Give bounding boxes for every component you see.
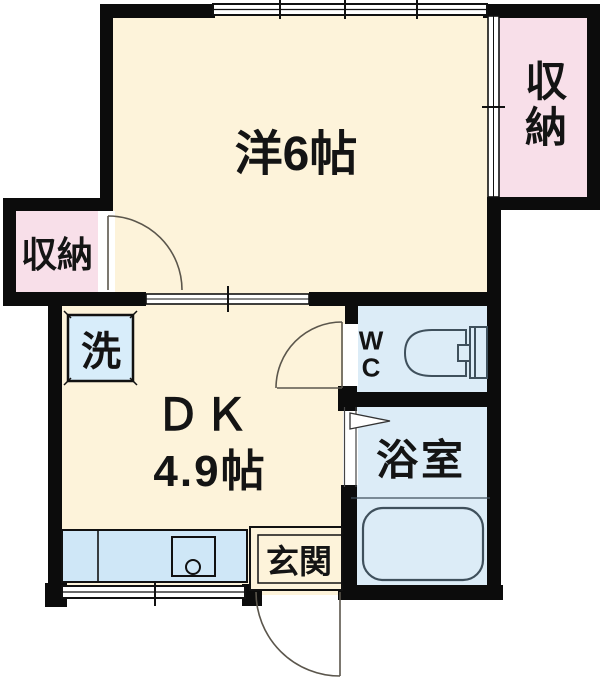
label-wc-line2: C xyxy=(359,355,384,382)
wall-bath-bottom xyxy=(338,585,503,600)
label-entrance: 玄関 xyxy=(266,535,332,583)
label-western-room: 洋6帖 xyxy=(235,114,358,184)
label-wc-line1: W xyxy=(359,328,384,355)
kitchen-counter-icon xyxy=(62,530,247,582)
wall-wc-bath-divider xyxy=(345,392,490,407)
entrance-door-icon xyxy=(256,592,340,676)
label-laundry: 洗 xyxy=(81,319,121,377)
wall-dk-block-mid xyxy=(338,386,357,411)
opening-closet-left xyxy=(98,211,115,292)
wall-top-main xyxy=(100,4,215,18)
wall-closet-right-bottom xyxy=(487,197,600,210)
wall-dk-left xyxy=(48,292,62,607)
wall-dk-bath-lower xyxy=(341,485,357,600)
label-closet-left: 収納 xyxy=(21,226,93,278)
label-dk: ＤＫ xyxy=(156,379,252,443)
floor-plan: 洋6帖 収納 収納 洗 ＤＫ 4.9帖 W C 浴室 玄関 xyxy=(0,0,600,679)
label-dk-size: 4.9帖 xyxy=(153,435,266,499)
opening-wc xyxy=(343,324,358,386)
wall-closet-right-outer xyxy=(587,4,600,210)
wall-top-right xyxy=(483,4,600,18)
label-bathroom: 浴室 xyxy=(376,427,466,488)
wall-mid-left xyxy=(3,292,146,306)
wall-closet-left-top xyxy=(3,198,113,211)
wall-left-main xyxy=(100,4,113,215)
label-closet-right: 収納 xyxy=(513,59,574,151)
wall-mid-right xyxy=(309,292,501,306)
wall-closet-left-side xyxy=(3,198,16,305)
label-wc: W C xyxy=(359,328,384,383)
wall-dk-wc-stub xyxy=(345,304,358,324)
